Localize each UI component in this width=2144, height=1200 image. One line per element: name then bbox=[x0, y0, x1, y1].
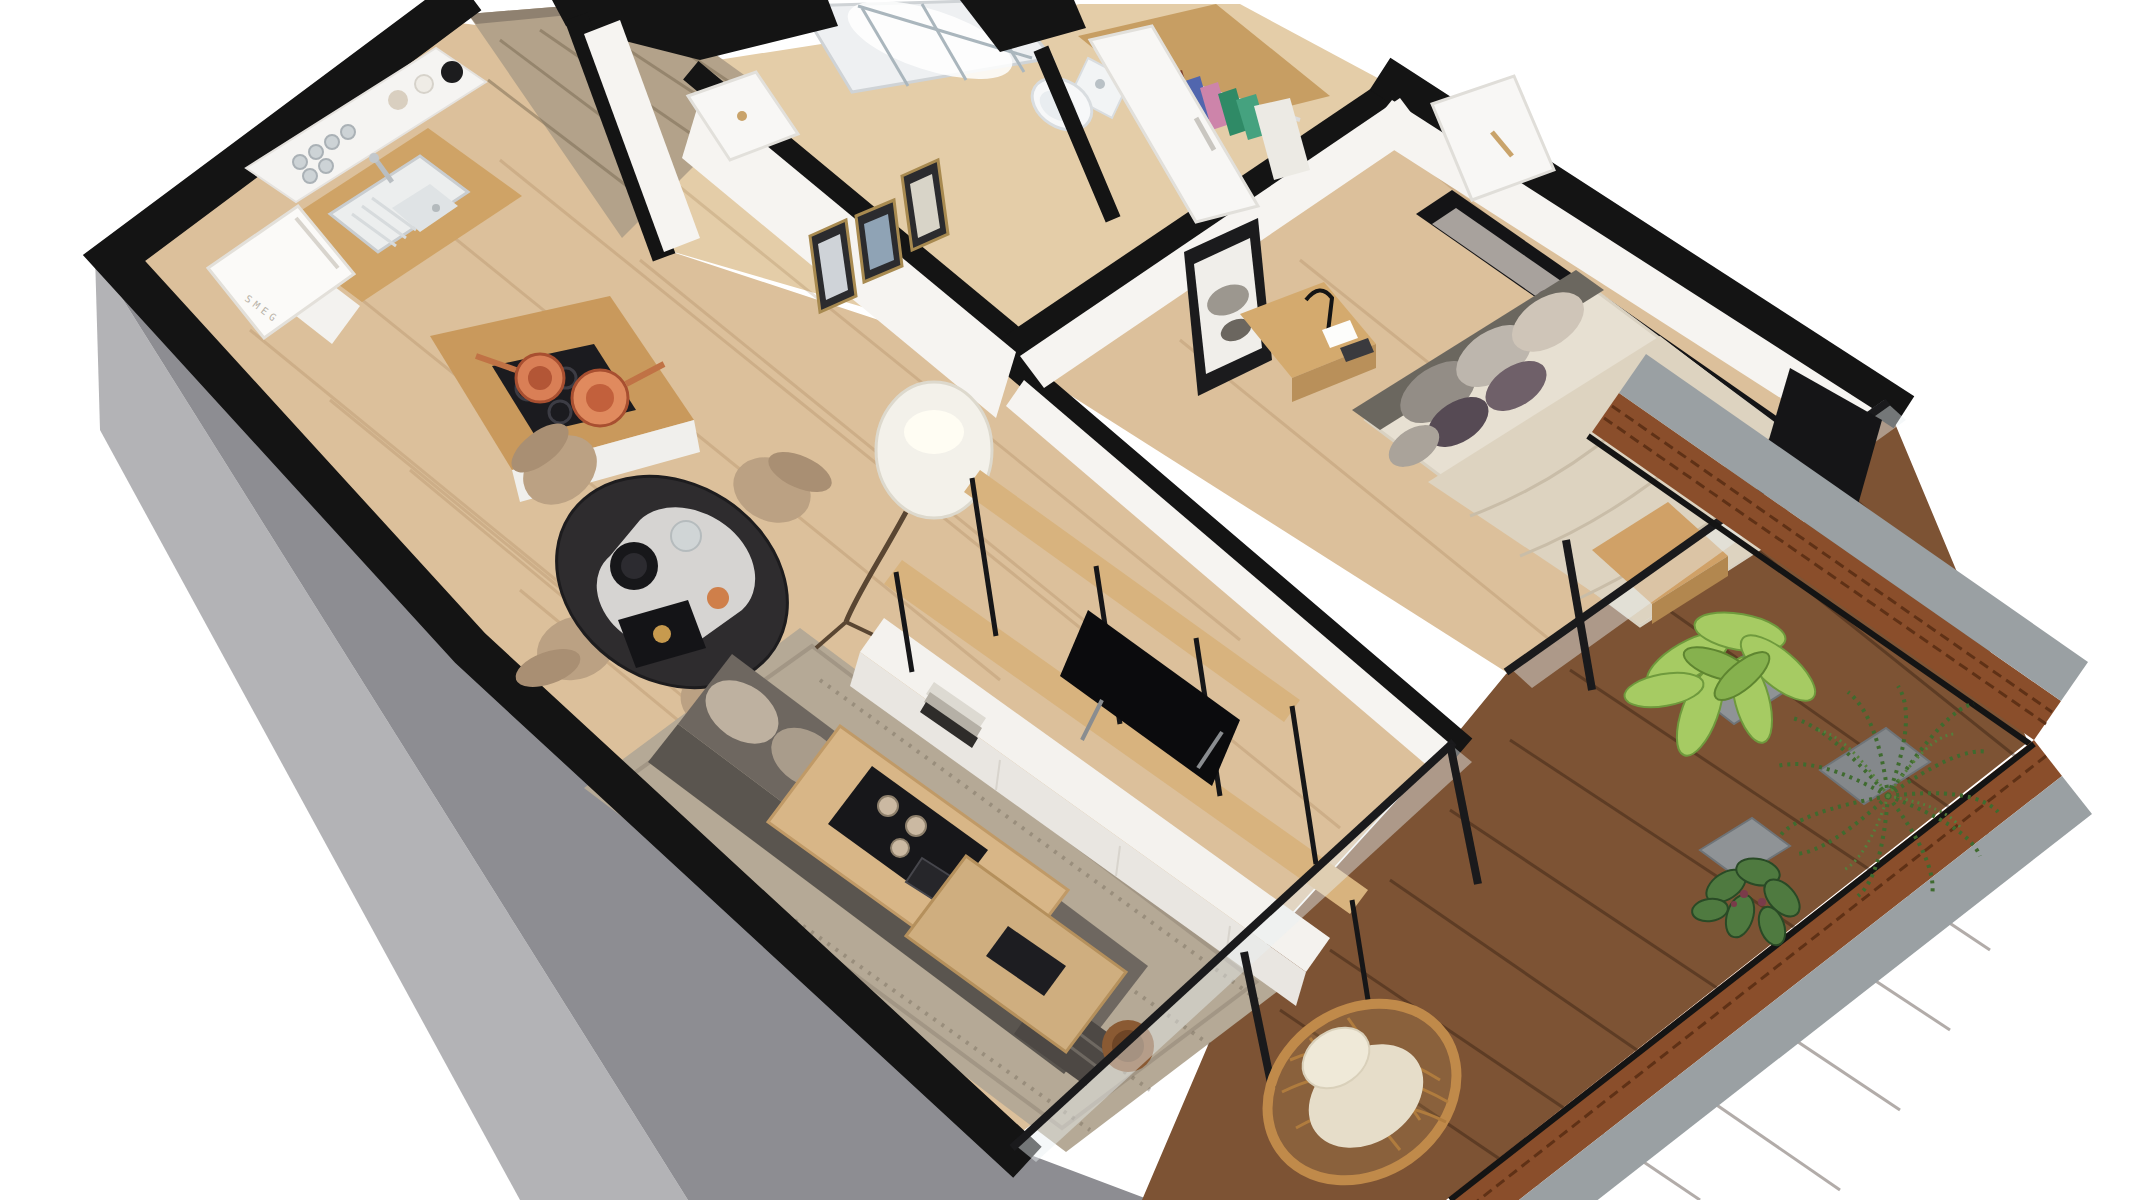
floor-plan-render: 3D isometric cutaway floor plan of a one… bbox=[0, 0, 2144, 1200]
gallery-picture bbox=[810, 220, 856, 312]
sink-drain bbox=[432, 204, 440, 212]
glass-vase bbox=[671, 521, 701, 551]
gold-bottle bbox=[653, 625, 671, 643]
gallery-picture bbox=[902, 160, 948, 250]
floor-plan-svg: 3D isometric cutaway floor plan of a one… bbox=[0, 0, 2144, 1200]
gallery-picture bbox=[856, 200, 902, 282]
door-handle bbox=[737, 111, 747, 121]
kettle bbox=[415, 75, 433, 93]
ceramic-bowl bbox=[388, 90, 408, 110]
chrome-flush-button bbox=[1095, 79, 1105, 89]
coffee-machine bbox=[441, 61, 463, 83]
small-dish bbox=[707, 587, 729, 609]
lamp-glow bbox=[904, 410, 964, 454]
